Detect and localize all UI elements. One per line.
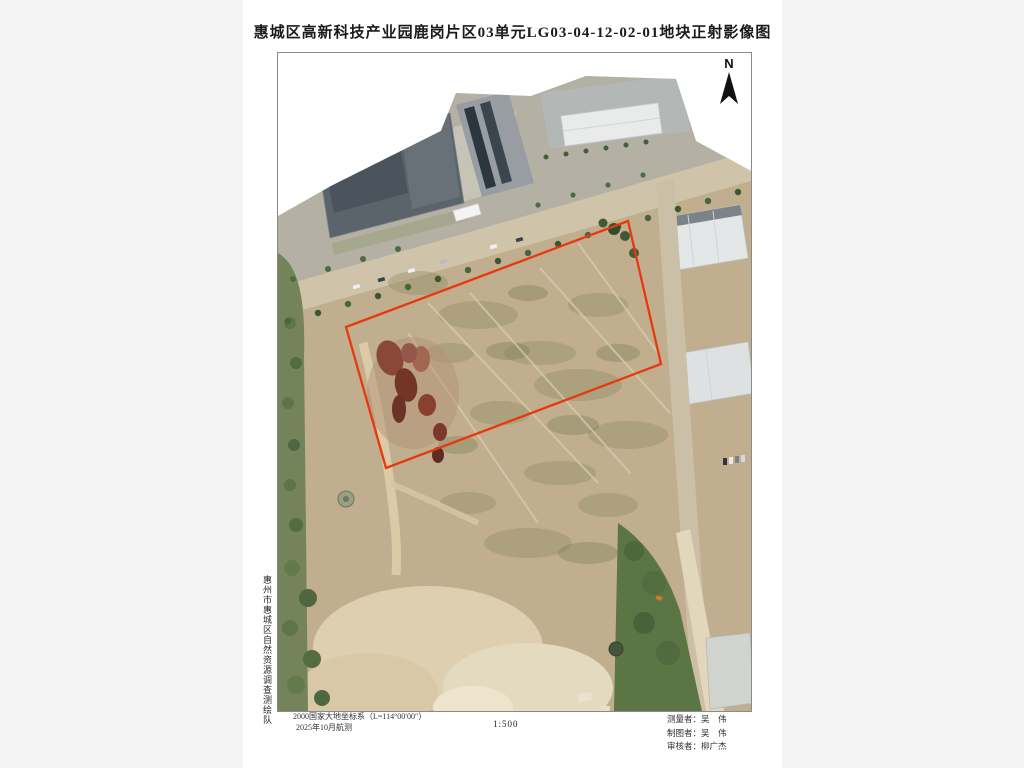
desktop-background: { "title": "惠城区高新科技产业园鹿岗片区03单元LG03-04-12… [0, 0, 1024, 768]
reviewer-credit: 审核者：柳广杰 [667, 740, 727, 754]
survey-date-label: 2025年10月航测 [296, 722, 426, 733]
map-frame: N [277, 52, 752, 712]
surveyor-credit: 测量者：吴 伟 [667, 713, 727, 727]
cartographer-credit: 制图者：吴 伟 [667, 727, 727, 741]
orthophoto-image [278, 53, 751, 711]
coordinate-system-label: 2000国家大地坐标系（L=114°00′00″） [293, 711, 426, 722]
credits-block: 测量者：吴 伟 制图者：吴 伟 审核者：柳广杰 [667, 713, 727, 754]
map-sheet-page: 惠城区高新科技产业园鹿岗片区03单元LG03-04-12-02-01地块正射影像… [243, 0, 782, 768]
north-label: N [716, 57, 742, 70]
north-arrow-icon [718, 71, 740, 105]
orthophoto-pixels [278, 53, 751, 711]
datum-note: 2000国家大地坐标系（L=114°00′00″） 2025年10月航测 [293, 711, 426, 733]
agency-label: 惠州市惠城区自然资源调查测绘队 [261, 575, 274, 725]
page-title: 惠城区高新科技产业园鹿岗片区03单元LG03-04-12-02-01地块正射影像… [243, 21, 782, 42]
north-arrow: N [716, 57, 742, 105]
scale-label: 1:500 [493, 719, 519, 729]
